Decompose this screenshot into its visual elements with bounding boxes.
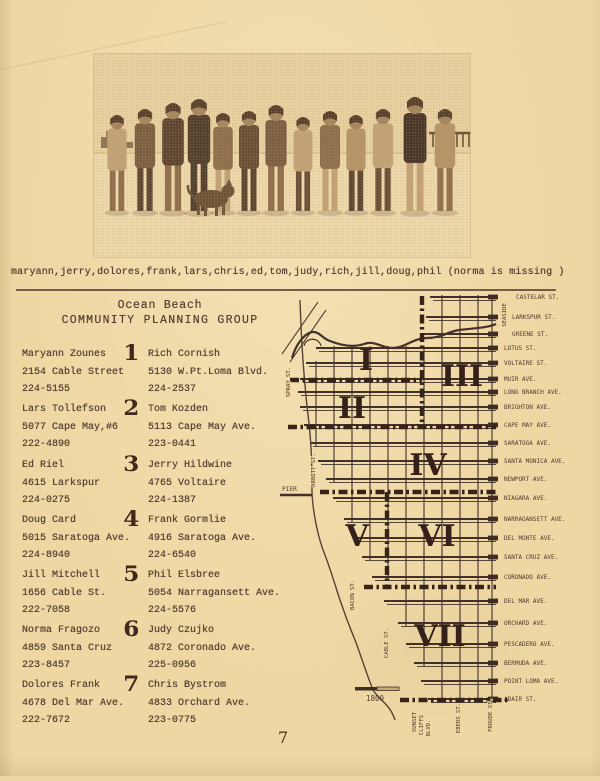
street-label: SANTA CRUZ AVE. xyxy=(504,554,558,561)
member-name: Rich Cornish xyxy=(148,346,268,364)
cliffs-label: CLIFFS xyxy=(419,715,425,735)
member-name: Jill Mitchell xyxy=(22,567,106,585)
street-label: ADAIR ST. xyxy=(504,696,537,703)
district-map: CASTELAR ST.LARKSPUR ST.GREENE ST.LOTUS … xyxy=(278,288,600,776)
member-name: Frank Gormlie xyxy=(148,512,256,530)
member-name: Tom Kozden xyxy=(148,401,256,419)
ebers-st-label: EBERS ST. xyxy=(456,703,462,733)
member-name: Judy Czujko xyxy=(148,622,256,640)
member-left: Lars Tollefson5077 Cape May,#6222-4890 xyxy=(22,401,118,454)
member-right: Frank Gormlie4916 Saratoga Ave.224-6540 xyxy=(148,512,256,565)
member-name: Doug Card xyxy=(22,512,130,530)
row-number: 1 xyxy=(123,340,139,365)
street-label: BERMUDA AVE. xyxy=(504,660,547,667)
district-VI: VI xyxy=(417,519,455,554)
member-left: Jill Mitchell1656 Cable St.222-7058 xyxy=(22,567,106,620)
district-V: V xyxy=(344,519,369,554)
member-address: 4615 Larkspur xyxy=(22,475,100,493)
street-ticks xyxy=(488,295,498,702)
member-address: 4872 Coronado Ave. xyxy=(148,640,256,658)
pier-label: PIER xyxy=(282,486,297,493)
member-phone: 224-0275 xyxy=(22,492,100,510)
row-number: 3 xyxy=(123,451,139,476)
street-label: CORONADO AVE. xyxy=(504,574,551,581)
street-label: NIAGARA AVE. xyxy=(504,495,547,502)
member-phone: 224-8940 xyxy=(22,547,130,565)
street-label: PESCADERO AVE. xyxy=(504,641,555,648)
district-I: I xyxy=(359,343,373,378)
member-address: 5113 Cape May Ave. xyxy=(148,419,256,437)
member-name: Norma Fragozo xyxy=(22,622,112,640)
bacon-st-label: BACON ST. xyxy=(350,580,356,610)
street-label: DEL MAR AVE. xyxy=(504,598,547,605)
member-name: Chris Bystrom xyxy=(148,677,250,695)
member-address: 4859 Santa Cruz xyxy=(22,640,112,658)
member-name: Dolores Frank xyxy=(22,677,124,695)
map-scale: 1800 xyxy=(355,687,399,703)
member-phone: 224-2537 xyxy=(148,381,268,399)
member-phone: 225-0956 xyxy=(148,657,256,675)
member-name: Ed Riel xyxy=(22,457,100,475)
cable-st-label: CABLE ST. xyxy=(384,628,390,658)
street-label: CAPE MAY AVE. xyxy=(504,422,551,429)
spray-st-label: SPRAY ST. xyxy=(286,367,292,397)
member-directory: 1Maryann Zounes2154 Cable Street224-5155… xyxy=(0,0,300,776)
member-address: 4833 Orchard Ave. xyxy=(148,695,250,713)
member-name: Maryann Zounes xyxy=(22,346,124,364)
member-left: Ed Riel4615 Larkspur224-0275 xyxy=(22,457,100,510)
member-left: Maryann Zounes2154 Cable Street224-5155 xyxy=(22,346,124,399)
froude-st-label: FROUDE ST. xyxy=(488,698,494,732)
street-label: NARRAGANSETT AVE. xyxy=(504,516,565,523)
member-name: Phil Elsbree xyxy=(148,567,280,585)
district-II: II xyxy=(338,391,366,426)
member-phone: 222-4890 xyxy=(22,436,118,454)
street-label: POINT LOMA AVE. xyxy=(504,678,558,685)
member-phone: 224-5155 xyxy=(22,381,124,399)
street-label: MUIR AVE. xyxy=(504,376,537,383)
member-address: 5077 Cape May,#6 xyxy=(22,419,118,437)
member-right: Phil Elsbree5054 Narragansett Ave.224-55… xyxy=(148,567,280,620)
member-left: Dolores Frank4678 Del Mar Ave.222-7672 xyxy=(22,677,124,730)
member-name: Jerry Hildwine xyxy=(148,457,232,475)
street-label: BRIGHTON AVE. xyxy=(504,404,551,411)
sunset-label: SUNSET xyxy=(412,711,418,732)
district-III: III xyxy=(441,359,483,394)
street-label: GREENE ST. xyxy=(512,331,548,338)
member-phone: 222-7672 xyxy=(22,712,124,730)
row-number: 7 xyxy=(123,671,139,696)
member-phone: 224-1387 xyxy=(148,492,232,510)
abbott-st-label: ABBOTT ST. xyxy=(311,453,317,487)
street-labels: CASTELAR ST.LARKSPUR ST.GREENE ST.LOTUS … xyxy=(504,294,565,703)
row-number: 5 xyxy=(123,561,139,586)
district-IV: IV xyxy=(409,448,447,483)
street-label: NEWPORT AVE. xyxy=(504,476,547,483)
street-label: VOLTAIRE ST. xyxy=(504,360,547,367)
member-address: 4765 Voltaire xyxy=(148,475,232,493)
member-address: 4916 Saratoga Ave. xyxy=(148,530,256,548)
street-label: ORCHARD AVE. xyxy=(504,620,547,627)
member-phone: 223-0441 xyxy=(148,436,256,454)
member-right: Tom Kozden5113 Cape May Ave.223-0441 xyxy=(148,401,256,454)
scale-label: 1800 xyxy=(366,694,385,703)
member-phone: 224-5576 xyxy=(148,602,280,620)
member-phone: 222-7058 xyxy=(22,602,106,620)
seaside-label: SEASIDE xyxy=(502,303,508,327)
street-label: LONG BRANCH AVE. xyxy=(504,389,562,396)
member-right: Rich Cornish5130 W.Pt.Loma Blvd.224-2537 xyxy=(148,346,268,399)
street-label: DEL MONTE AVE. xyxy=(504,535,555,542)
row-number: 2 xyxy=(123,395,139,420)
member-left: Norma Fragozo4859 Santa Cruz223-8457 xyxy=(22,622,112,675)
blvd-label: BLVD. xyxy=(426,720,432,737)
voltaire-curve-road xyxy=(292,324,496,358)
member-address: 1656 Cable St. xyxy=(22,585,106,603)
street-label: SANTA MONICA AVE. xyxy=(504,458,565,465)
member-address: 5015 Saratoga Ave. xyxy=(22,530,130,548)
street-label: CASTELAR ST. xyxy=(516,294,559,301)
member-phone: 224-6540 xyxy=(148,547,256,565)
page-number: 7 xyxy=(278,728,288,747)
member-address: 4678 Del Mar Ave. xyxy=(22,695,124,713)
street-label: LOTUS ST. xyxy=(504,345,537,352)
member-right: Judy Czujko4872 Coronado Ave.225-0956 xyxy=(148,622,256,675)
member-name: Lars Tollefson xyxy=(22,401,118,419)
street-label: SARATOGA AVE. xyxy=(504,440,551,447)
street-grid xyxy=(298,295,496,703)
member-address: 2154 Cable Street xyxy=(22,364,124,382)
row-number: 6 xyxy=(123,616,139,641)
member-phone: 223-0775 xyxy=(148,712,250,730)
member-phone: 223-8457 xyxy=(22,657,112,675)
member-right: Chris Bystrom4833 Orchard Ave.223-0775 xyxy=(148,677,250,730)
district-VII: VII xyxy=(413,619,465,654)
street-label: LARKSPUR ST. xyxy=(512,314,555,321)
member-left: Doug Card5015 Saratoga Ave.224-8940 xyxy=(22,512,130,565)
member-address: 5130 W.Pt.Loma Blvd. xyxy=(148,364,268,382)
member-right: Jerry Hildwine4765 Voltaire224-1387 xyxy=(148,457,232,510)
member-address: 5054 Narragansett Ave. xyxy=(148,585,280,603)
